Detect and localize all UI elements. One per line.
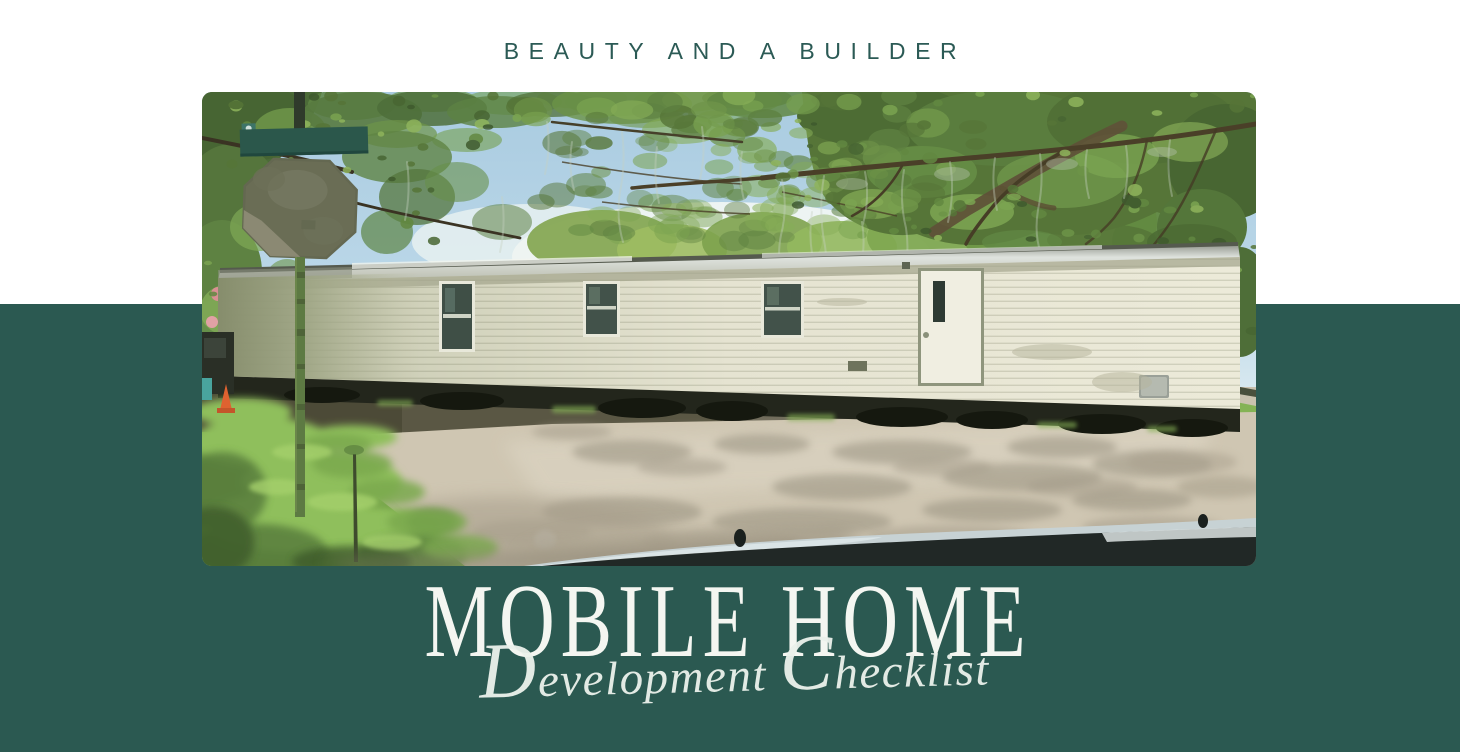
svg-text:Development Checklist: Development Checklist xyxy=(477,615,991,715)
